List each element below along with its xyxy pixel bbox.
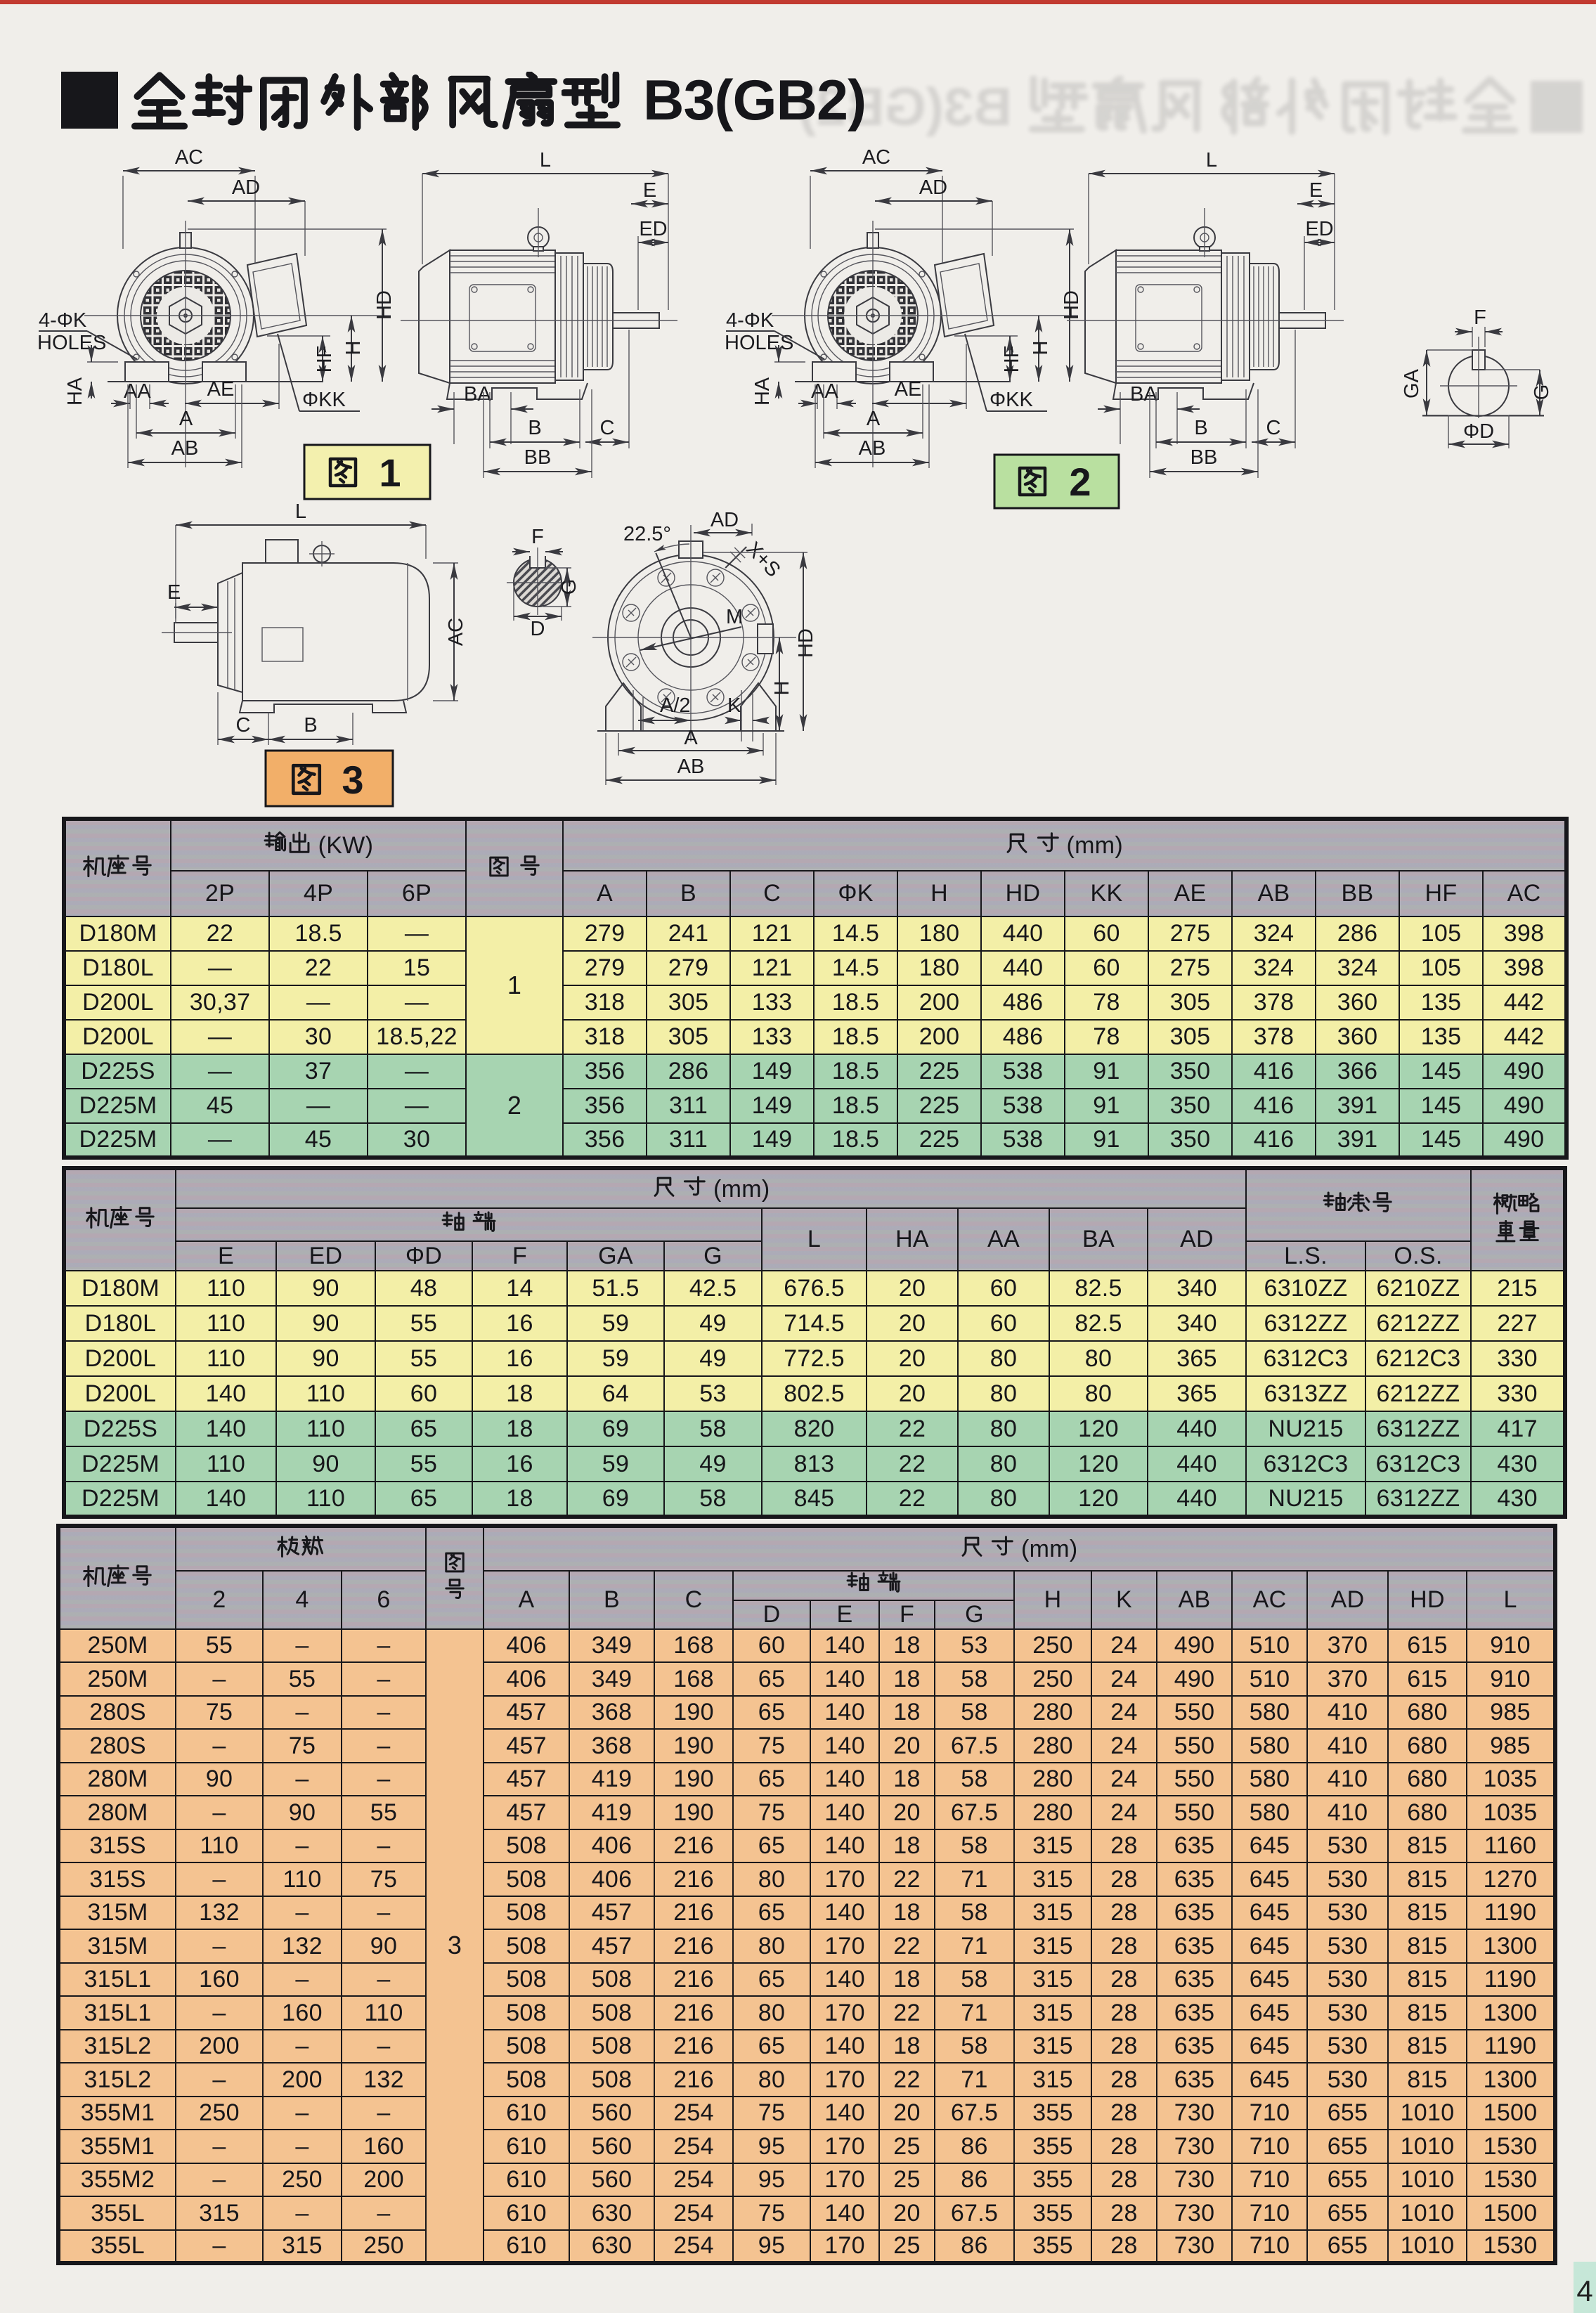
svg-text:ED: ED — [639, 218, 667, 240]
svg-text:D: D — [531, 618, 545, 640]
svg-text:BB: BB — [524, 446, 552, 469]
svg-text:L: L — [540, 149, 551, 171]
svg-text:B: B — [528, 417, 541, 439]
svg-text:ΦD: ΦD — [1463, 420, 1494, 443]
svg-text:F: F — [1474, 306, 1486, 329]
svg-text:A: A — [867, 408, 881, 430]
svg-text:HA: HA — [751, 377, 774, 406]
svg-text:4-ΦK: 4-ΦK — [726, 309, 774, 332]
svg-text:ED: ED — [1305, 218, 1333, 240]
svg-text:AD: AD — [919, 176, 947, 199]
svg-text:AC: AC — [175, 146, 203, 169]
svg-text:HF: HF — [313, 346, 336, 373]
svg-text:AD: AD — [711, 509, 739, 531]
svg-text:BB: BB — [1190, 446, 1218, 469]
svg-text:AC: AC — [862, 146, 890, 169]
svg-text:A: A — [179, 408, 193, 430]
svg-text:3: 3 — [342, 758, 363, 802]
svg-text:F: F — [531, 526, 544, 548]
svg-text:C: C — [1266, 417, 1281, 439]
svg-text:2: 2 — [1069, 460, 1091, 504]
svg-text:H: H — [1030, 341, 1052, 356]
svg-text:HF: HF — [1001, 346, 1023, 373]
svg-text:L: L — [295, 500, 306, 523]
svg-text:X+S: X+S — [741, 538, 784, 582]
svg-text:G: G — [558, 579, 580, 595]
svg-text:HD: HD — [795, 628, 817, 658]
svg-text:AB: AB — [859, 437, 886, 460]
svg-text:K: K — [727, 694, 741, 717]
svg-text:L: L — [1206, 149, 1217, 171]
svg-text:AC: AC — [445, 618, 467, 646]
svg-text:E: E — [167, 581, 181, 604]
svg-text:AB: AB — [171, 437, 199, 460]
svg-text:B: B — [1194, 417, 1207, 439]
svg-text:A/2: A/2 — [660, 694, 691, 717]
svg-text:H: H — [771, 681, 793, 696]
svg-text:C: C — [600, 417, 615, 439]
svg-text:HA: HA — [64, 377, 86, 406]
svg-text:4-ΦK: 4-ΦK — [39, 309, 87, 332]
svg-text:BA: BA — [1130, 383, 1157, 406]
svg-text:AB: AB — [677, 756, 705, 778]
svg-text:HD: HD — [373, 290, 396, 320]
svg-text:HOLES: HOLES — [725, 332, 793, 354]
svg-text:AE: AE — [895, 378, 922, 401]
svg-text:A: A — [684, 727, 698, 749]
svg-text:E: E — [1309, 179, 1323, 202]
svg-text:E: E — [643, 179, 656, 202]
svg-text:H: H — [342, 341, 365, 356]
svg-text:22.5°: 22.5° — [623, 523, 671, 545]
svg-text:C: C — [236, 714, 251, 737]
svg-text:AD: AD — [232, 176, 260, 199]
svg-text:ΦKK: ΦKK — [990, 389, 1033, 411]
svg-text:AE: AE — [207, 378, 235, 401]
svg-text:BA: BA — [464, 383, 491, 406]
svg-text:G: G — [1531, 384, 1553, 401]
svg-text:GA: GA — [1401, 368, 1423, 399]
svg-text:HOLES: HOLES — [37, 332, 106, 354]
svg-text:ΦKK: ΦKK — [302, 389, 346, 411]
svg-text:HD: HD — [1060, 290, 1083, 320]
svg-text:M: M — [726, 606, 743, 628]
svg-text:1: 1 — [379, 451, 401, 495]
svg-text:B: B — [304, 714, 317, 737]
